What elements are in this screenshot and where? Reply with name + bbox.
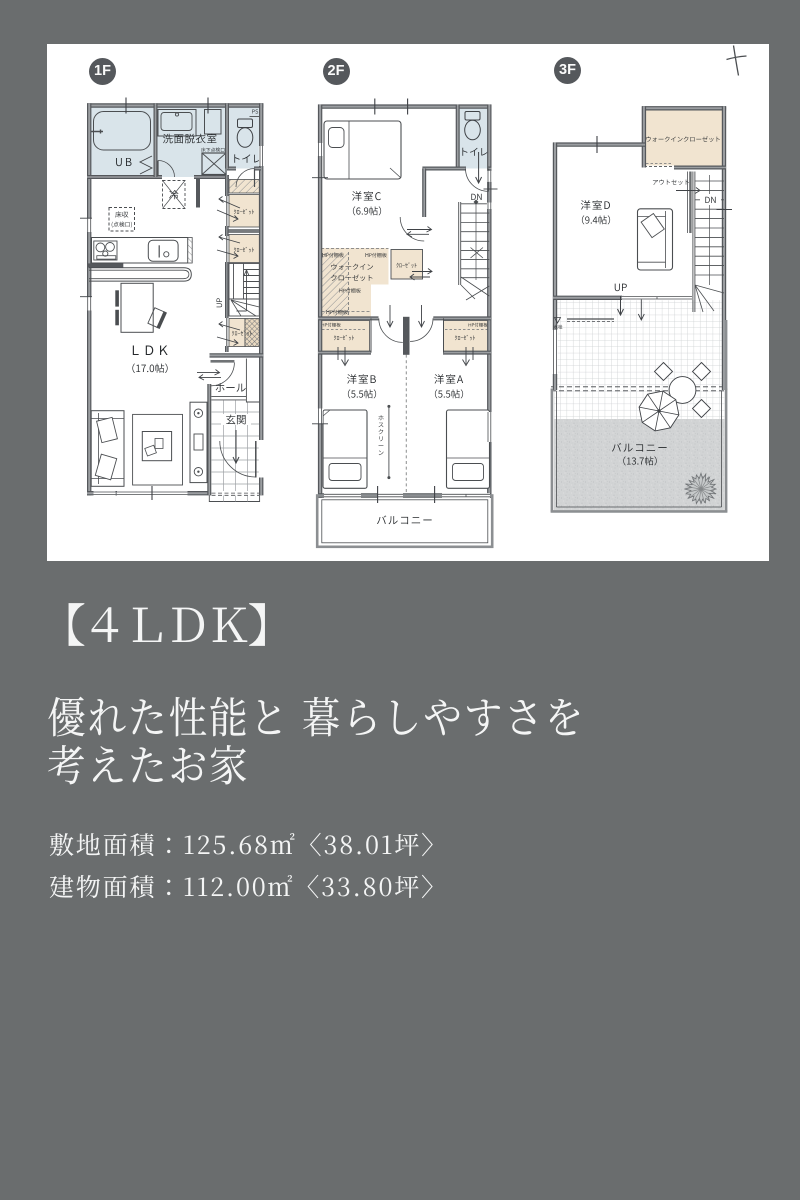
svg-text:DN: DN (471, 191, 483, 203)
svg-text:トイレ: トイレ (459, 144, 489, 159)
svg-text:玄関: 玄関 (226, 413, 247, 428)
svg-text:HP付棚板: HP付棚板 (326, 309, 348, 316)
svg-text:ホスクリーン: ホスクリーン (378, 413, 384, 457)
svg-text:ｸﾛｰｾﾞｯﾄ: ｸﾛｰｾﾞｯﾄ (233, 207, 254, 216)
svg-text:ｸﾛｰｾﾞｯﾄ: ｸﾛｰｾﾞｯﾄ (396, 261, 417, 270)
svg-text:HP付棚板: HP付棚板 (468, 323, 488, 329)
svg-text:（5.5帖）: （5.5帖） (341, 387, 383, 401)
svg-text:冷: 冷 (169, 187, 179, 202)
svg-text:ＬＤＫ: ＬＤＫ (129, 340, 171, 359)
svg-text:(点検口): (点検口) (111, 220, 132, 229)
svg-text:HP付棚板: HP付棚板 (339, 288, 361, 295)
svg-text:トイレ: トイレ (231, 152, 263, 167)
svg-text:UB: UB (115, 154, 134, 170)
svg-text:洋室C: 洋室C (352, 189, 383, 204)
svg-text:（5.5帖）: （5.5帖） (428, 387, 470, 401)
svg-text:HP付棚板: HP付棚板 (365, 252, 387, 259)
svg-text:ｸﾛｰｾﾞｯﾄ: ｸﾛｰｾﾞｯﾄ (231, 329, 252, 338)
svg-text:クローゼット: クローゼット (330, 274, 373, 284)
svg-text:バルコニー: バルコニー (376, 513, 434, 528)
svg-text:HP付棚板: HP付棚板 (321, 323, 341, 329)
svg-text:（17.0帖）: （17.0帖） (125, 360, 174, 375)
svg-text:ホール: ホール (215, 381, 247, 396)
svg-text:HP付棚板: HP付棚板 (322, 252, 344, 259)
svg-text:洋室D: 洋室D (580, 198, 611, 213)
svg-text:（13.7帖）: （13.7帖） (617, 454, 664, 468)
svg-text:ｸﾛｰｾﾞｯﾄ: ｸﾛｰｾﾞｯﾄ (454, 333, 475, 342)
svg-text:水栓: 水栓 (554, 325, 563, 331)
svg-text:DN: DN (705, 194, 717, 206)
svg-text:ｸﾛｰｾﾞｯﾄ: ｸﾛｰｾﾞｯﾄ (233, 245, 254, 254)
svg-text:UP: UP (214, 298, 225, 308)
svg-text:洋室B: 洋室B (347, 372, 378, 387)
svg-text:PS: PS (252, 108, 259, 116)
svg-text:（9.4帖）: （9.4帖） (575, 213, 617, 227)
svg-text:洗面脱衣室: 洗面脱衣室 (163, 132, 218, 147)
svg-text:ウォークインクローゼット: ウォークインクローゼット (645, 135, 721, 144)
svg-text:ウォークイン: ウォークイン (330, 263, 373, 273)
svg-text:洋室A: 洋室A (434, 372, 464, 387)
svg-text:UP: UP (614, 279, 627, 294)
svg-text:（6.9帖）: （6.9帖） (346, 204, 388, 218)
svg-text:床収: 床収 (115, 209, 129, 219)
svg-text:アウトセット: アウトセット (652, 178, 690, 187)
svg-text:ｸﾛｰｾﾞｯﾄ: ｸﾛｰｾﾞｯﾄ (333, 333, 354, 342)
